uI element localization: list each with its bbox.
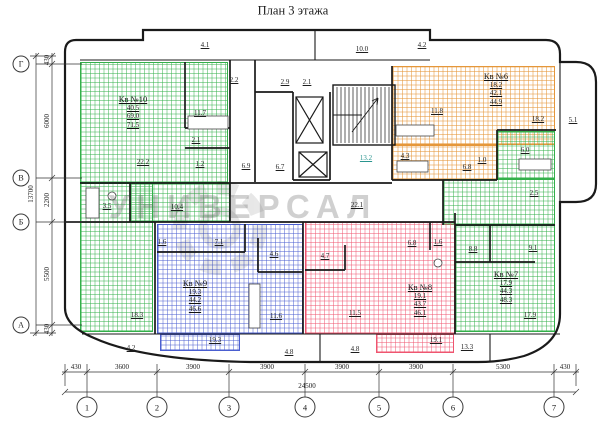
dimension-total-label: 13700	[27, 185, 35, 203]
axis-col-5: 5	[369, 397, 390, 418]
apartment-region-kv10-main	[80, 62, 228, 183]
room-area-label: 4.8	[285, 348, 294, 356]
room-area-label: 2.1	[192, 136, 201, 144]
room-area-label: 11.6	[270, 312, 282, 320]
room-area-label: 7.1	[215, 238, 224, 246]
room-area-label: 5.1	[569, 116, 578, 124]
room-area-label: 22.1	[351, 201, 363, 209]
room-area-label: 10.0	[356, 45, 368, 53]
elevator-shafts	[296, 97, 327, 177]
room-area-label: 6.8	[463, 163, 472, 171]
room-area-label: 11.7	[194, 109, 206, 117]
room-area-label: 19.1	[430, 336, 442, 344]
room-area-label: 3.5	[103, 202, 112, 210]
room-area-label: 17.9	[524, 311, 536, 319]
apartment-label-kv9: Кв №9 19.3 44.2 46.6	[183, 278, 207, 313]
dimension-label: 3900	[335, 363, 349, 371]
dimension-label: 5300	[496, 363, 510, 371]
axis-row-g: Г	[13, 56, 30, 73]
room-area-label: 6.9	[242, 162, 251, 170]
room-area-label: 4.3	[401, 152, 410, 160]
room-area-label: 4.2	[127, 344, 136, 352]
axis-col-3: 3	[219, 397, 240, 418]
room-area-label: 1.0	[478, 156, 487, 164]
room-area-label: 2.9	[281, 78, 290, 86]
apartment-region-kv7-bath	[497, 131, 555, 179]
room-area-label: 13.3	[461, 343, 473, 351]
apartment-region-kv9-bay	[160, 334, 240, 351]
axis-col-4: 4	[295, 397, 316, 418]
apartment-label-kv7: Кв №7 17.9 44.3 48.3	[494, 269, 518, 304]
axis-col-1: 1	[77, 397, 98, 418]
room-area-label: 22.2	[137, 158, 149, 166]
room-area-label: 19.3	[209, 336, 221, 344]
room-area-label: 2.5	[530, 189, 539, 197]
dimension-label: 430	[43, 55, 51, 66]
apartment-region-kv8-bay	[376, 334, 454, 353]
room-area-label: 4.8	[351, 345, 360, 353]
room-area-label: 4.2	[418, 41, 427, 49]
dimension-total-label: 24500	[298, 382, 316, 390]
apartment-region-kv8-main	[305, 222, 455, 334]
dimension-label: 430	[71, 363, 82, 371]
dimension-label: 430	[43, 324, 51, 335]
dimension-label: 3900	[409, 363, 423, 371]
axis-col-2: 2	[147, 397, 168, 418]
room-area-label: 4.6	[270, 250, 279, 258]
room-area-label: 18.3	[131, 311, 143, 319]
room-area-label: 6.7	[276, 163, 285, 171]
staircase	[333, 85, 395, 145]
axis-col-7: 7	[544, 397, 565, 418]
room-area-label: 18.2	[532, 115, 544, 123]
room-area-label: 1.6	[158, 238, 167, 246]
dimension-label: 3900	[260, 363, 274, 371]
dimension-label: 5500	[43, 267, 51, 281]
room-area-label: 10.4	[171, 203, 183, 211]
room-area-label: 9.1	[529, 244, 538, 252]
room-area-label: 8.8	[469, 245, 478, 253]
dimension-label: 6000	[43, 114, 51, 128]
room-area-label: 11.8	[431, 107, 443, 115]
apartment-label-kv6: Кв №6 18.2 42.1 44.9	[484, 71, 508, 106]
room-area-label: 2.2	[230, 76, 239, 84]
room-area-label: 2.1	[303, 78, 312, 86]
floor-plan-drawing: План 3 этажа	[0, 0, 600, 424]
room-area-label: 4.7	[321, 252, 330, 260]
room-area-label: 6.8	[408, 239, 417, 247]
apartment-region-kv7-hall	[443, 179, 555, 225]
apartment-label-kv8: Кв №8 19.1 43.7 46.1	[408, 282, 432, 317]
room-area-label: 1.2	[196, 160, 205, 168]
dimension-label: 430	[560, 363, 571, 371]
page-title: План 3 этажа	[258, 4, 329, 19]
watermark-text: УНИВЕРСАЛ	[109, 188, 378, 226]
axis-row-a: А	[13, 317, 30, 334]
axis-col-6: 6	[443, 397, 464, 418]
room-area-label: 13.2	[360, 154, 372, 162]
room-area-label: 6.0	[521, 146, 530, 154]
room-area-label: 1.6	[434, 238, 443, 246]
room-area-label: 4.1	[201, 41, 210, 49]
apartment-label-kv10: Кв №10 40.5 69.0 71.5	[119, 94, 147, 129]
dimension-label: 3600	[115, 363, 129, 371]
axis-row-b: Б	[13, 214, 30, 231]
dimension-label: 2200	[43, 193, 51, 207]
room-area-label: 11.5	[349, 309, 361, 317]
dimension-label: 3900	[186, 363, 200, 371]
